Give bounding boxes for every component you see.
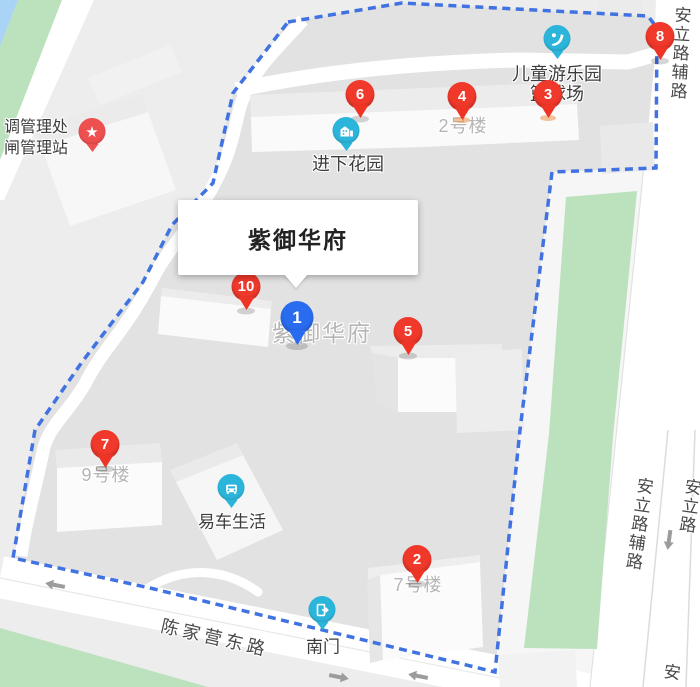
marker-pointer xyxy=(454,107,470,120)
poi-pointer xyxy=(316,622,328,630)
marker-1[interactable]: 1 xyxy=(281,301,314,345)
house-icon xyxy=(333,117,360,144)
marker-8[interactable]: 8 xyxy=(646,22,675,60)
poi-south-gate[interactable] xyxy=(309,596,336,630)
marker-pointer xyxy=(352,105,368,118)
star-icon: ★ xyxy=(79,118,106,145)
estate-info-card-title: 紫御华府 xyxy=(248,221,348,255)
marker-pointer xyxy=(97,455,113,468)
poi-pointer xyxy=(86,144,98,152)
poi-pointer xyxy=(225,500,237,508)
marker-2[interactable]: 2 xyxy=(403,545,432,583)
map-canvas[interactable]: 2号楼 9号楼 7号楼 紫御华府 陈家营东路 安立路辅路 安立路辅路 安立路 安… xyxy=(0,0,700,687)
marker-pointer xyxy=(540,105,556,118)
marker-7[interactable]: 7 xyxy=(91,430,120,468)
poi-pointer xyxy=(551,51,563,59)
marker-5[interactable]: 5 xyxy=(394,317,423,355)
marker-pointer xyxy=(400,342,416,355)
marker-pointer xyxy=(288,330,306,345)
poi-playground[interactable] xyxy=(544,25,571,59)
marker-10[interactable]: 10 xyxy=(232,272,261,310)
marker-pointer xyxy=(238,297,254,310)
marker-pointer xyxy=(652,47,668,60)
marker-3[interactable]: 3 xyxy=(534,80,563,118)
poi-jinxia-garden[interactable] xyxy=(333,117,360,151)
poi-label-south-gate: 南门 xyxy=(306,633,340,658)
road-label-an-partial: 安 xyxy=(656,661,683,683)
poi-management-station[interactable]: ★ xyxy=(79,118,106,152)
info-card-pointer xyxy=(284,274,308,288)
poi-label-management-line2: 闸管理站 xyxy=(4,134,68,158)
poi-pointer xyxy=(340,143,352,151)
marker-4[interactable]: 4 xyxy=(448,82,477,120)
poi-label-yiche-life: 易车生活 xyxy=(198,508,266,533)
poi-yiche-life[interactable] xyxy=(218,474,245,508)
marker-pointer xyxy=(409,570,425,583)
gate-icon xyxy=(309,596,336,623)
marker-6[interactable]: 6 xyxy=(346,80,375,118)
estate-info-card[interactable]: 紫御华府 xyxy=(178,200,418,275)
poi-label-jinxia-garden: 进下花园 xyxy=(312,150,384,176)
car-icon xyxy=(218,474,245,501)
slide-icon xyxy=(544,25,571,52)
